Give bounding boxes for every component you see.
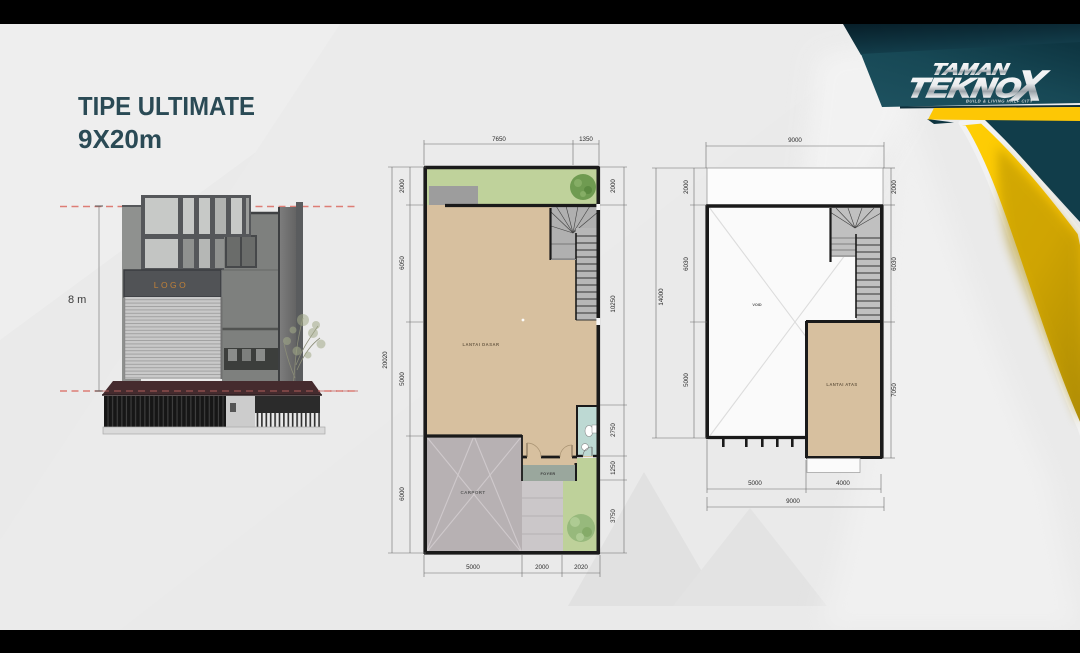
svg-text:3750: 3750 [610,509,617,523]
svg-text:2000: 2000 [610,179,617,193]
svg-text:6000: 6000 [399,487,406,501]
svg-text:6050: 6050 [399,256,406,270]
svg-text:LANTAI ATAS: LANTAI ATAS [826,382,857,387]
svg-text:8 m: 8 m [68,294,86,306]
svg-text:BUILD & LIVING HALF CITY: BUILD & LIVING HALF CITY [965,99,1033,104]
svg-text:2000: 2000 [683,180,690,194]
svg-text:20020: 20020 [382,351,389,369]
svg-text:7050: 7050 [891,383,898,397]
svg-text:4000: 4000 [836,480,850,487]
svg-text:2020: 2020 [574,564,588,571]
svg-text:5000: 5000 [466,564,480,571]
svg-text:14000: 14000 [658,288,665,306]
svg-text:6030: 6030 [891,257,898,271]
svg-text:LANTAI DASAR: LANTAI DASAR [462,342,499,347]
svg-text:TIPE ULTIMATE: TIPE ULTIMATE [78,91,255,121]
svg-text:2000: 2000 [399,179,406,193]
svg-text:7650: 7650 [492,136,506,143]
svg-text:CARPORT: CARPORT [460,490,485,495]
svg-text:9X20m: 9X20m [78,124,162,154]
svg-text:9000: 9000 [788,137,802,144]
svg-text:1350: 1350 [579,136,593,143]
svg-text:2000: 2000 [535,564,549,571]
svg-text:6030: 6030 [683,257,690,271]
svg-text:FOYER: FOYER [540,472,555,476]
svg-text:VOID: VOID [752,303,762,307]
svg-text:10250: 10250 [610,295,617,313]
svg-text:2000: 2000 [891,180,898,194]
svg-text:5000: 5000 [399,372,406,386]
svg-text:1250: 1250 [610,461,617,475]
svg-text:9000: 9000 [786,498,800,505]
svg-text:LOGO: LOGO [154,280,189,290]
svg-text:2750: 2750 [610,423,617,437]
svg-text:5000: 5000 [683,373,690,387]
svg-text:5000: 5000 [748,480,762,487]
